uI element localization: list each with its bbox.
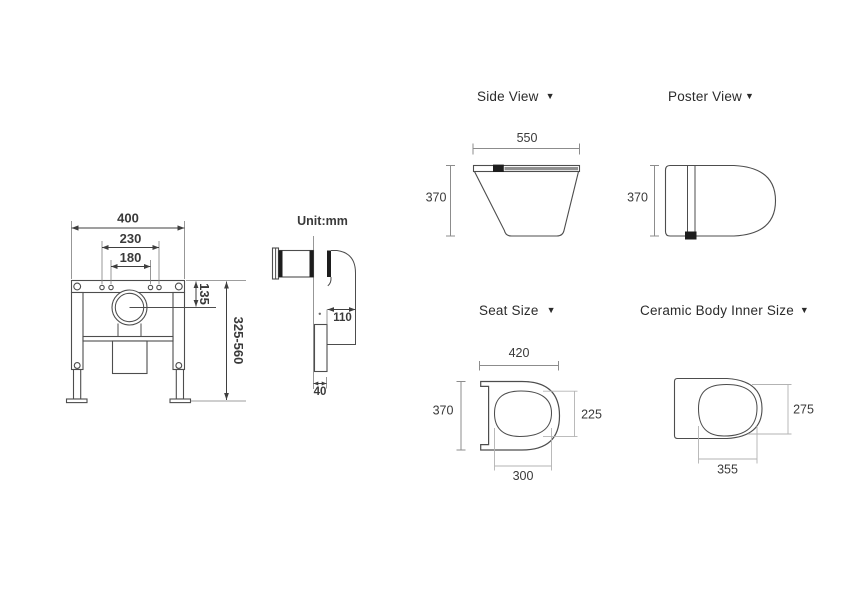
dim-label-poster-width: 370	[627, 191, 648, 205]
dim-label-outlet-drop: 135	[197, 283, 212, 305]
poster-view-title: Poster View	[668, 89, 742, 104]
frame-legs	[67, 370, 191, 403]
unit-note: Unit:mm	[297, 214, 348, 228]
seat-size-diagram: 420 370 225 300	[430, 340, 610, 490]
dim-label-ceramic-inner-width: 355	[717, 463, 738, 477]
side-view-diagram: 550 370	[420, 128, 605, 250]
flush-pipe	[315, 313, 328, 372]
center-mark	[319, 313, 321, 315]
dropdown-caret-icon: ▼	[745, 92, 754, 101]
dim-label-ceramic-inner-depth: 275	[793, 403, 814, 417]
spec-sheet: 400 230 180 135 325-560 Unit:mm	[0, 0, 865, 600]
side-view-body	[474, 165, 580, 236]
horizontal-pipe	[273, 248, 314, 279]
dim-label-seat-inner-width: 300	[513, 469, 534, 483]
dim-label-bolt-span-outer: 230	[120, 231, 142, 246]
dim-label-height-range: 325-560	[231, 317, 246, 365]
poster-view-dimensions: 370	[627, 166, 659, 237]
seat-size-header[interactable]: Seat Size ▼	[479, 303, 556, 318]
dim-label-side-height: 370	[426, 191, 447, 205]
outlet-pipe-diagram: Unit:mm 110 40	[260, 208, 395, 403]
dim-label-side-depth: 550	[517, 131, 538, 145]
marker-square	[493, 165, 504, 172]
dim-label-seat-inner-depth: 225	[581, 408, 602, 422]
ceramic-inner-title: Ceramic Body Inner Size	[640, 303, 794, 318]
seat-outline	[481, 382, 560, 451]
poster-view-body	[666, 166, 776, 240]
frame-dimensions: 400 230 180 135 325-560	[72, 211, 247, 401]
dim-label-seat-width: 420	[509, 346, 530, 360]
elbow-bend	[327, 251, 356, 345]
dim-label-seat-depth: 370	[433, 404, 454, 418]
dropdown-caret-icon: ▼	[800, 306, 809, 315]
ceramic-body-outline	[675, 379, 763, 439]
side-view-title: Side View	[477, 89, 539, 104]
side-view-header[interactable]: Side View ▼	[477, 89, 555, 104]
lid-shade	[505, 167, 579, 170]
poster-view-diagram: 370	[615, 150, 805, 250]
install-frame-diagram: 400 230 180 135 325-560	[40, 195, 255, 410]
ceramic-inner-diagram: 275 355	[650, 360, 825, 485]
poster-view-header[interactable]: Poster View ▼	[668, 89, 754, 104]
ceramic-inner-header[interactable]: Ceramic Body Inner Size ▼	[640, 303, 809, 318]
dim-label-flush-pipe-width: 40	[314, 386, 327, 398]
seat-size-title: Seat Size	[479, 303, 539, 318]
dim-label-bolt-span-inner: 180	[120, 250, 142, 265]
marker-square	[685, 232, 697, 240]
dropdown-caret-icon: ▼	[547, 306, 556, 315]
dim-label-frame-width: 400	[117, 211, 139, 226]
cistern-box	[113, 341, 148, 374]
dim-label-outlet-offset: 110	[333, 312, 352, 324]
dropdown-caret-icon: ▼	[546, 92, 555, 101]
